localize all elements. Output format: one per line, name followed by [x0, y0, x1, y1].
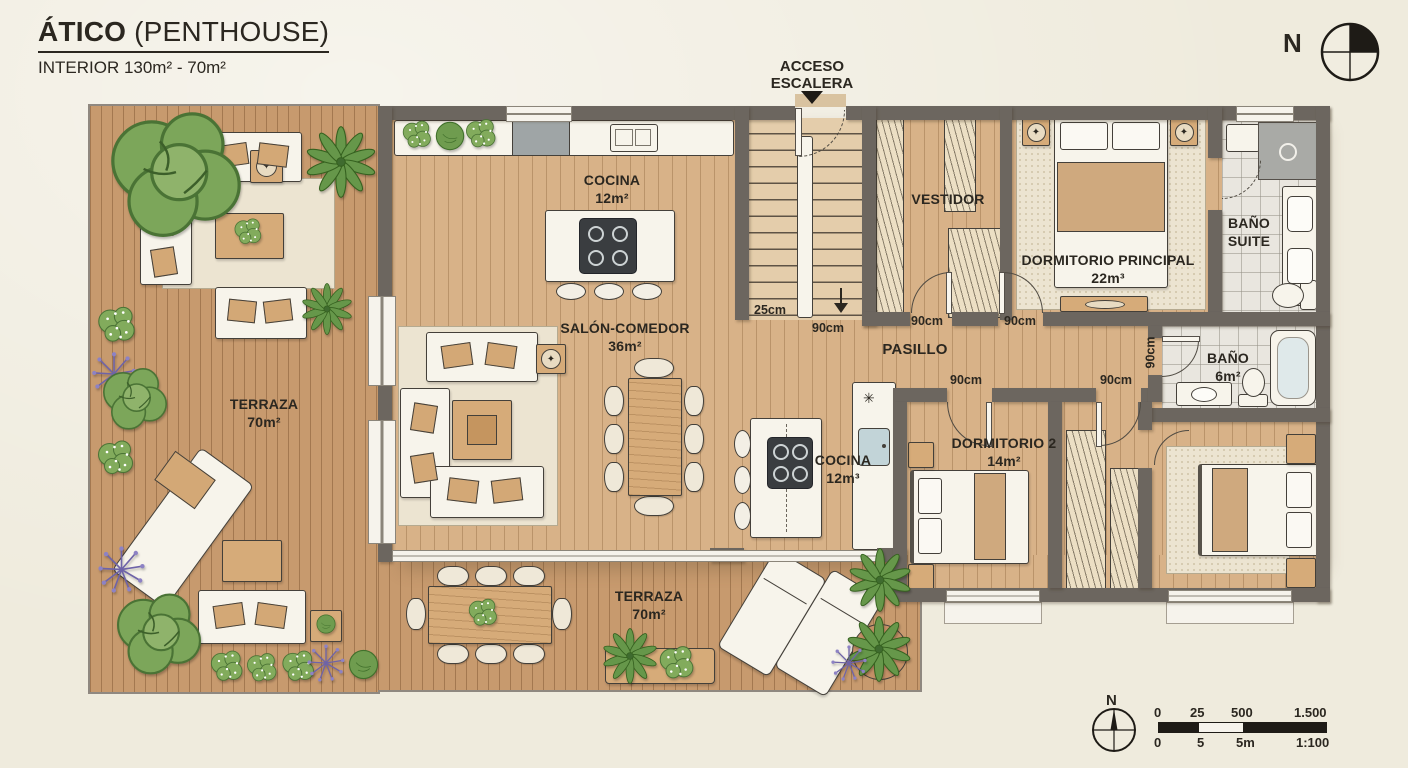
title-paren: (PENTHOUSE) — [134, 16, 329, 47]
island-stool — [594, 283, 624, 300]
window — [506, 106, 572, 122]
access-arrow-icon — [801, 91, 823, 104]
outdoor-table-small — [222, 540, 282, 582]
burner-icon — [588, 250, 604, 266]
room-area: 12m³ — [798, 470, 888, 488]
console-table — [1060, 296, 1148, 312]
sofa-cushion — [441, 342, 474, 369]
outdoor-chair — [513, 644, 545, 664]
flower-bush — [92, 428, 142, 486]
plan-title-block: ÁTICO (PENTHOUSE) INTERIOR 130m² - 70m² — [38, 16, 329, 78]
pillow — [1112, 122, 1160, 150]
window-sill — [1166, 602, 1294, 624]
wall-dorm2-east — [1048, 402, 1062, 588]
sliding-glass-door — [392, 550, 879, 562]
room-area: 6m² — [1190, 368, 1266, 386]
cooktop — [579, 218, 637, 274]
label-pasillo: PASILLO — [875, 341, 955, 360]
room-name: COCINA — [542, 172, 682, 190]
island-stool — [734, 466, 751, 494]
page-title: ÁTICO (PENTHOUSE) — [38, 16, 329, 53]
room-name: SALÓN-COMEDOR — [535, 320, 715, 338]
scale-tick: 5m — [1236, 735, 1255, 750]
console-bowl — [1085, 300, 1125, 309]
wall-stair-vestidor — [862, 106, 876, 326]
dim-door-vestidor: 90cm — [905, 314, 949, 328]
access-stair-label: ACCESO ESCALERA — [742, 58, 882, 93]
dining-chair — [604, 386, 624, 416]
suite-sink — [1287, 196, 1313, 232]
bed-blanket — [974, 473, 1006, 560]
scale-tick: 1:100 — [1296, 735, 1329, 750]
suite-sink — [1287, 248, 1313, 284]
outdoor-chair — [437, 566, 469, 586]
compass-rose-icon — [1318, 20, 1382, 84]
dining-chair — [684, 424, 704, 454]
terrace-tree — [85, 96, 267, 258]
vestidor-door-leaf — [946, 272, 952, 314]
wall-pasillo-bottom-1 — [893, 388, 947, 402]
lavender-plant — [828, 642, 870, 684]
suite-sink-small — [1226, 124, 1260, 152]
palm-plant — [305, 126, 377, 198]
dim-stair-tread: 25cm — [748, 303, 792, 317]
outdoor-chair — [475, 644, 507, 664]
wall-pasillo-top-1 — [862, 312, 910, 326]
wall-pasillo-top-2 — [952, 312, 998, 326]
title-subtitle: INTERIOR 130m² - 70m² — [38, 58, 329, 78]
room-area: 12m² — [542, 190, 682, 208]
decor-star-icon: ✦ — [1175, 123, 1194, 142]
dining-centerpiece-plant — [462, 592, 506, 632]
wall-pasillo-top-3 — [1043, 312, 1330, 326]
room-area: 70m² — [204, 414, 324, 432]
wall-principal-suite-n — [1208, 106, 1222, 158]
window — [368, 420, 396, 544]
dining-chair — [684, 386, 704, 416]
dim-door-dorm2: 90cm — [944, 373, 988, 387]
coffee-table — [452, 400, 512, 460]
lavender-plant — [304, 640, 348, 686]
label-terraza-bottom: TERRAZA70m² — [589, 588, 709, 623]
sink-basin — [615, 129, 633, 146]
pillow — [1286, 472, 1312, 508]
bed-blanket — [1057, 162, 1165, 232]
nightstand — [1286, 558, 1316, 588]
bathtub-basin — [1277, 337, 1309, 399]
burner-icon — [773, 466, 789, 482]
scale-segment — [1243, 723, 1326, 732]
dining-chair — [634, 358, 674, 378]
sofa-cushion — [227, 299, 257, 324]
compass-north-label: N — [1283, 28, 1302, 59]
burner-icon — [612, 226, 628, 242]
outdoor-chair — [475, 566, 507, 586]
decor-star-icon: ✦ — [1027, 123, 1046, 142]
shower-drain-icon — [1279, 143, 1297, 161]
bed-blanket — [1212, 468, 1248, 552]
label-bano: BAÑO6m² — [1190, 350, 1266, 385]
wall-dorm3-west-s — [1138, 468, 1152, 588]
label-terraza-left: TERRAZA70m² — [204, 396, 324, 431]
sofa-cushion — [491, 477, 524, 503]
label-salon: SALÓN-COMEDOR36m² — [535, 320, 715, 355]
label-cocina: COCINA12m² — [542, 172, 682, 207]
room-area: 22m³ — [1015, 270, 1201, 288]
dining-chair — [604, 462, 624, 492]
scale-bar — [1158, 722, 1327, 733]
big-bush — [103, 583, 215, 688]
room-name: TERRAZA — [589, 588, 709, 606]
dining-chair — [604, 424, 624, 454]
access-line2: ESCALERA — [742, 75, 882, 92]
burner-icon — [612, 250, 628, 266]
stair-divider-rail — [797, 136, 813, 318]
flower-bush — [92, 293, 144, 355]
window — [1168, 590, 1292, 602]
title-main: ÁTICO — [38, 16, 126, 47]
room-name: COCINA — [798, 452, 888, 470]
sofa-cushion — [410, 452, 438, 483]
dining-chair — [634, 496, 674, 516]
scale-tick: 1.500 — [1294, 705, 1327, 720]
room-area: 14m² — [928, 453, 1080, 471]
label-principal: DORMITORIO PRINCIPAL22m³ — [1015, 252, 1201, 287]
nightstand: ✦ — [1022, 118, 1050, 146]
kitchen-planter-plant — [460, 112, 504, 154]
sofa-cushion — [255, 602, 288, 629]
outdoor-chair — [513, 566, 545, 586]
outdoor-chair — [552, 598, 572, 630]
outdoor-chair — [437, 644, 469, 664]
wall-kitchen-stair — [735, 106, 749, 320]
palm-plant — [848, 548, 912, 612]
bano-door-leaf — [1162, 336, 1200, 342]
dim-stair-exit: 90cm — [806, 321, 850, 335]
scale-tick: 25 — [1190, 705, 1204, 720]
bano-sink — [1191, 387, 1217, 402]
pillow — [918, 518, 942, 554]
floorplan-canvas: ÁTICO (PENTHOUSE) INTERIOR 130m² - 70m² … — [0, 0, 1408, 768]
bano-vanity — [1176, 382, 1232, 406]
room-name: DORMITORIO 2 — [928, 435, 1080, 453]
island-stool — [556, 283, 586, 300]
table-tray — [467, 415, 497, 445]
principal-door-leaf — [999, 272, 1005, 314]
lounger-line — [763, 578, 806, 605]
label-bano-suite: BAÑOSUITE — [1216, 215, 1282, 250]
island-stool — [734, 502, 751, 530]
burner-icon — [773, 444, 789, 460]
sofa-cushion — [410, 402, 438, 433]
palm-plant — [301, 283, 353, 335]
scale-segment — [1159, 723, 1199, 732]
sofa-cushion — [263, 298, 293, 323]
freezer-icon: ✳ — [863, 390, 875, 407]
bathtub — [1270, 330, 1316, 406]
stair-direction-arrow-icon — [834, 303, 848, 313]
dim-door-closet: 90cm — [1094, 373, 1138, 387]
room-name: BAÑO — [1216, 215, 1282, 233]
wardrobe — [876, 114, 904, 314]
pillow — [1060, 122, 1108, 150]
island-stool — [632, 283, 662, 300]
room-area: 36m² — [535, 338, 715, 356]
room-name: BAÑO — [1190, 350, 1266, 368]
wall-bano-west-s — [1148, 375, 1162, 402]
sofa-cushion — [485, 342, 518, 369]
fridge-handle — [882, 444, 886, 448]
sofa-cushion — [213, 602, 246, 629]
room-name: PASILLO — [875, 341, 955, 360]
room-name: TERRAZA — [204, 396, 324, 414]
pillow — [1286, 512, 1312, 548]
wall-pasillo-bottom-3 — [1141, 388, 1148, 402]
access-line1: ACCESO — [742, 58, 882, 75]
room-name: SUITE — [1216, 233, 1282, 251]
round-bush — [345, 646, 382, 683]
dim-door-principal: 90cm — [998, 314, 1042, 328]
dim-door-bano: 90cm — [1144, 331, 1157, 375]
wall-pasillo-bottom-2 — [992, 388, 1096, 402]
dining-chair — [684, 462, 704, 492]
room-name: DORMITORIO PRINCIPAL — [1015, 252, 1201, 270]
scale-tick: 5 — [1197, 735, 1204, 750]
sofa-cushion — [447, 477, 480, 503]
stair-direction-stem — [840, 288, 842, 304]
entry-door-leaf — [795, 108, 802, 156]
room-area: 70m² — [589, 606, 709, 624]
outdoor-chair — [406, 598, 426, 630]
scale-tick: 0 — [1154, 735, 1161, 750]
wall-east — [1316, 106, 1330, 602]
sink-basin — [635, 129, 651, 146]
side-table-plant — [314, 612, 338, 636]
window — [368, 296, 396, 386]
scale-tick: 0 — [1154, 705, 1161, 720]
label-dorm2: DORMITORIO 214m² — [928, 435, 1080, 470]
nightstand: ✦ — [1170, 118, 1198, 146]
island-stool — [734, 430, 751, 458]
legend-compass-icon — [1090, 706, 1138, 754]
scale-tick: 500 — [1231, 705, 1253, 720]
window-sill — [944, 602, 1042, 624]
burner-icon — [588, 226, 604, 242]
toilet-bowl — [1272, 283, 1304, 308]
dining-table — [628, 378, 682, 496]
wardrobe — [948, 228, 1004, 318]
nightstand — [1286, 434, 1316, 464]
closet-door-leaf — [1096, 402, 1102, 447]
label-vestidor: VESTIDOR — [898, 191, 998, 209]
window — [1236, 106, 1294, 122]
wall-bano-south — [1148, 408, 1330, 422]
label-cocina2: COCINA12m³ — [798, 452, 888, 487]
window — [946, 590, 1040, 602]
room-name: VESTIDOR — [898, 191, 998, 209]
shower — [1258, 122, 1318, 180]
flower-bush — [650, 638, 706, 686]
kitchen-sink — [610, 124, 658, 152]
kitchen-appliance-block — [512, 120, 570, 156]
pillow — [918, 478, 942, 514]
